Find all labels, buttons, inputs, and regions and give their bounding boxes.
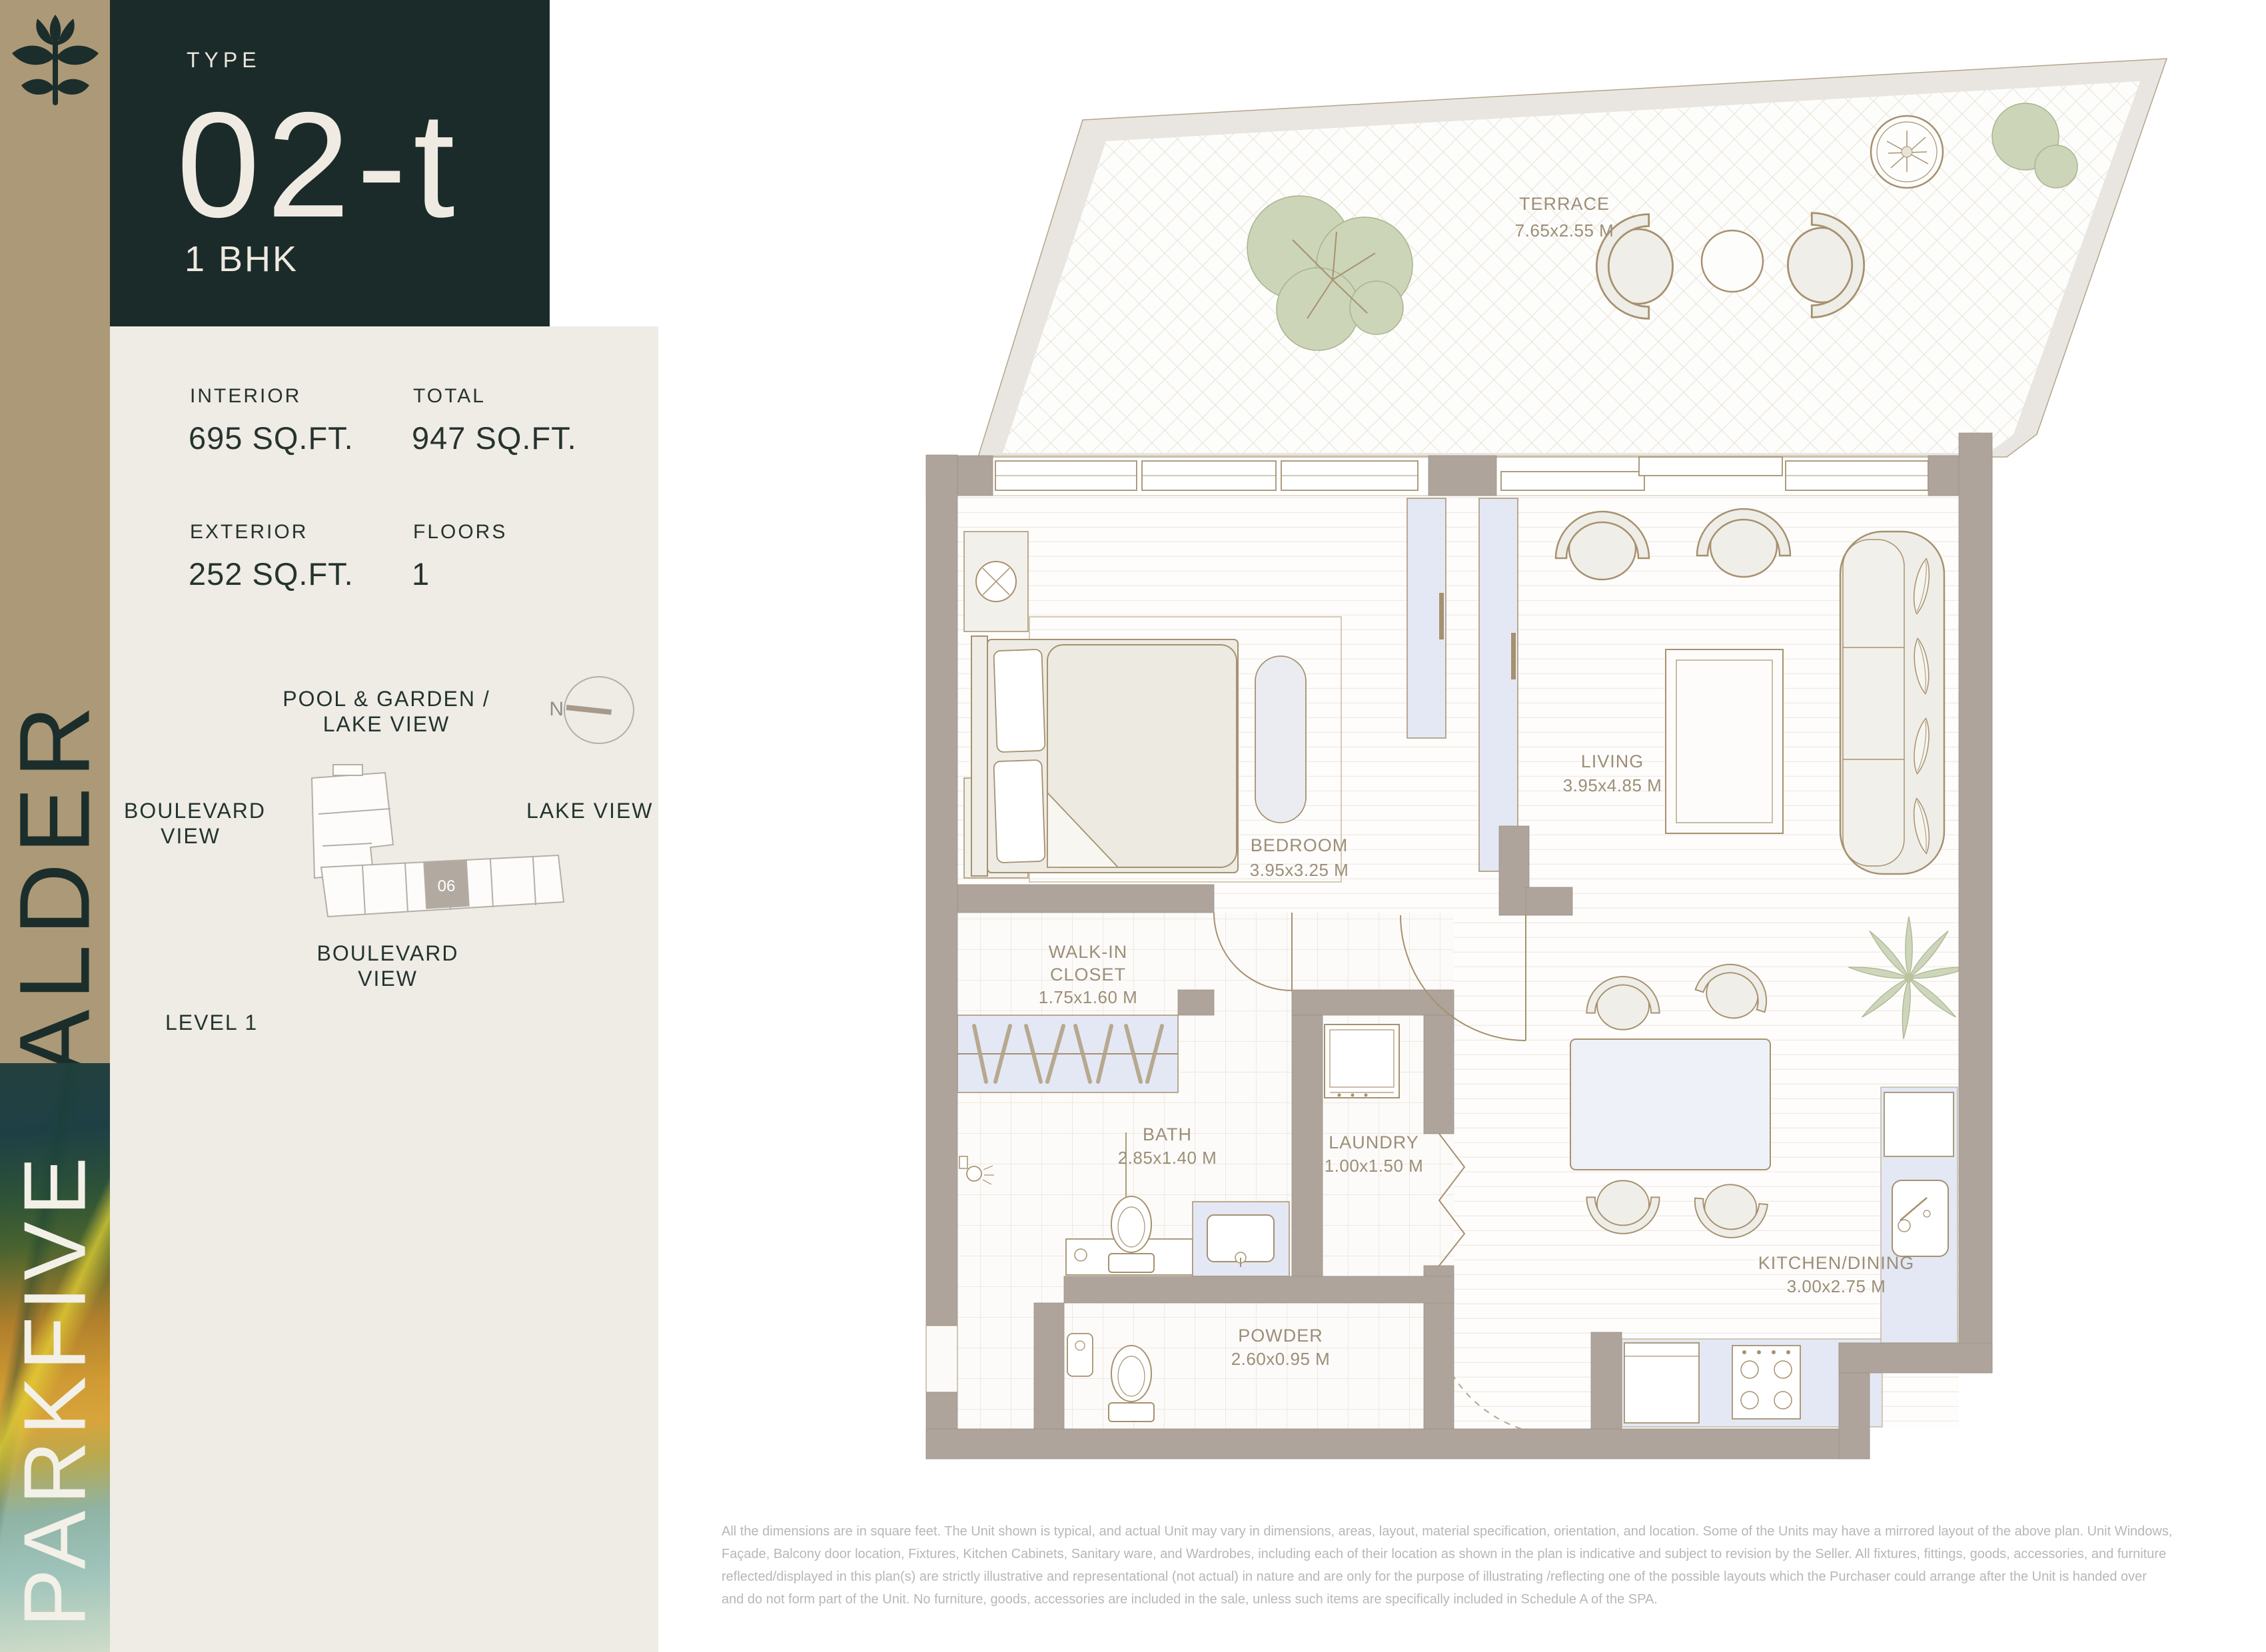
- project-name-vertical: PARKFIVE: [0, 1136, 110, 1643]
- bedroom-dims: 3.95x3.25 M: [1250, 860, 1349, 880]
- living-label: LIVING: [1581, 751, 1644, 771]
- view-label-left-line1: BOULEVARD: [124, 799, 266, 823]
- dining-table: [1570, 1039, 1770, 1170]
- stat-value-exterior: 252 SQ.FT.: [189, 556, 354, 592]
- type-value: 02-t: [177, 79, 462, 251]
- oven: [1884, 1092, 1954, 1156]
- laundry-dims: 1.00x1.50 M: [1325, 1156, 1424, 1176]
- site-key-plan: 06: [263, 666, 663, 946]
- stat-value-total: 947 SQ.FT.: [412, 420, 577, 456]
- disclaimer-line: Façade, Balcony door location, Fixtures,…: [722, 1543, 2241, 1565]
- coffee-table: [1666, 649, 1783, 833]
- powder-basin: [1067, 1334, 1093, 1376]
- walkin-dims: 1.75x1.60 M: [1039, 987, 1138, 1007]
- wardrobe: [957, 1015, 1178, 1092]
- stat-label-interior: INTERIOR: [190, 385, 301, 408]
- unit-type-box: TYPE 02-t 1 BHK: [110, 0, 550, 326]
- walkin-label-line1: WALK-IN: [1049, 942, 1128, 962]
- kitchen-label: KITCHEN/DINING: [1758, 1253, 1915, 1273]
- sofa: [1840, 532, 1944, 874]
- toilet-icon: [1109, 1346, 1154, 1422]
- view-label-bottom: BOULEVARD VIEW: [288, 941, 488, 991]
- brand-strip-artwork: PARKFIVE: [0, 1063, 110, 1652]
- disclaimer-line: and do not form part of the Unit. No fur…: [722, 1588, 2241, 1611]
- compass-needle: [566, 705, 612, 715]
- level-label: LEVEL 1: [165, 1010, 365, 1035]
- terrace-label: TERRACE: [1519, 194, 1610, 214]
- disclaimer-line: reflected/displayed in this plan(s) are …: [722, 1565, 2241, 1588]
- terrace-dims: 7.65x2.55 M: [1515, 220, 1614, 240]
- stove: [1732, 1346, 1800, 1419]
- disclaimer: All the dimensions are in square feet. T…: [722, 1520, 2241, 1611]
- stat-value-floors: 1: [412, 556, 430, 592]
- terrace-planter: [1871, 116, 1943, 188]
- view-label-left: BOULEVARD VIEW: [124, 798, 257, 849]
- building-name-vertical: ALDER: [0, 687, 110, 1086]
- powder-dims: 2.60x0.95 M: [1231, 1349, 1331, 1369]
- terrace-table: [1702, 230, 1763, 292]
- lamp-icon: [976, 562, 1016, 602]
- stat-label-floors: FLOORS: [413, 521, 507, 544]
- highlighted-unit-number: 06: [438, 877, 456, 895]
- bath-dims: 2.85x1.40 M: [1118, 1148, 1217, 1168]
- view-label-bottom-line2: VIEW: [358, 967, 418, 991]
- fridge: [1624, 1343, 1699, 1423]
- bedroom-bench: [1255, 656, 1306, 823]
- bath-sink: [1193, 1202, 1289, 1276]
- living-dims: 3.95x4.85 M: [1563, 775, 1662, 795]
- floor-plan: TERRACE 7.65x2.55 M BEDROOM 3.95x3.25 M …: [919, 40, 2266, 1505]
- powder-label: POWDER: [1238, 1326, 1323, 1346]
- stat-label-total: TOTAL: [413, 385, 486, 408]
- walkin-label-line2: CLOSET: [1050, 965, 1126, 985]
- brand-strip-tan: ALDER: [0, 0, 110, 1063]
- left-wall-window: [926, 1326, 957, 1392]
- kitchen-sink: [1892, 1180, 1948, 1256]
- bed: [971, 636, 1238, 876]
- kitchen-dims: 3.00x2.75 M: [1787, 1276, 1886, 1296]
- laundry-label: LAUNDRY: [1329, 1132, 1419, 1152]
- disclaimer-line: All the dimensions are in square feet. T…: [722, 1520, 2241, 1543]
- stat-value-interior: 695 SQ.FT.: [189, 420, 354, 456]
- type-label: TYPE: [187, 48, 261, 73]
- sliding-door: [1501, 457, 1782, 490]
- unit-config: 1 BHK: [185, 238, 298, 280]
- brochure-page: ALDER PARKFIVE TYPE 02-t 1 BHK INTERIOR …: [0, 0, 2266, 1652]
- laundry-fixtures: [1325, 1025, 1399, 1098]
- flower-logo-icon: [0, 0, 110, 113]
- stat-label-exterior: EXTERIOR: [190, 521, 308, 544]
- bedroom-label: BEDROOM: [1251, 835, 1349, 855]
- view-label-left-line2: VIEW: [161, 824, 221, 848]
- toilet-icon: [1109, 1196, 1154, 1272]
- bath-label: BATH: [1143, 1124, 1192, 1144]
